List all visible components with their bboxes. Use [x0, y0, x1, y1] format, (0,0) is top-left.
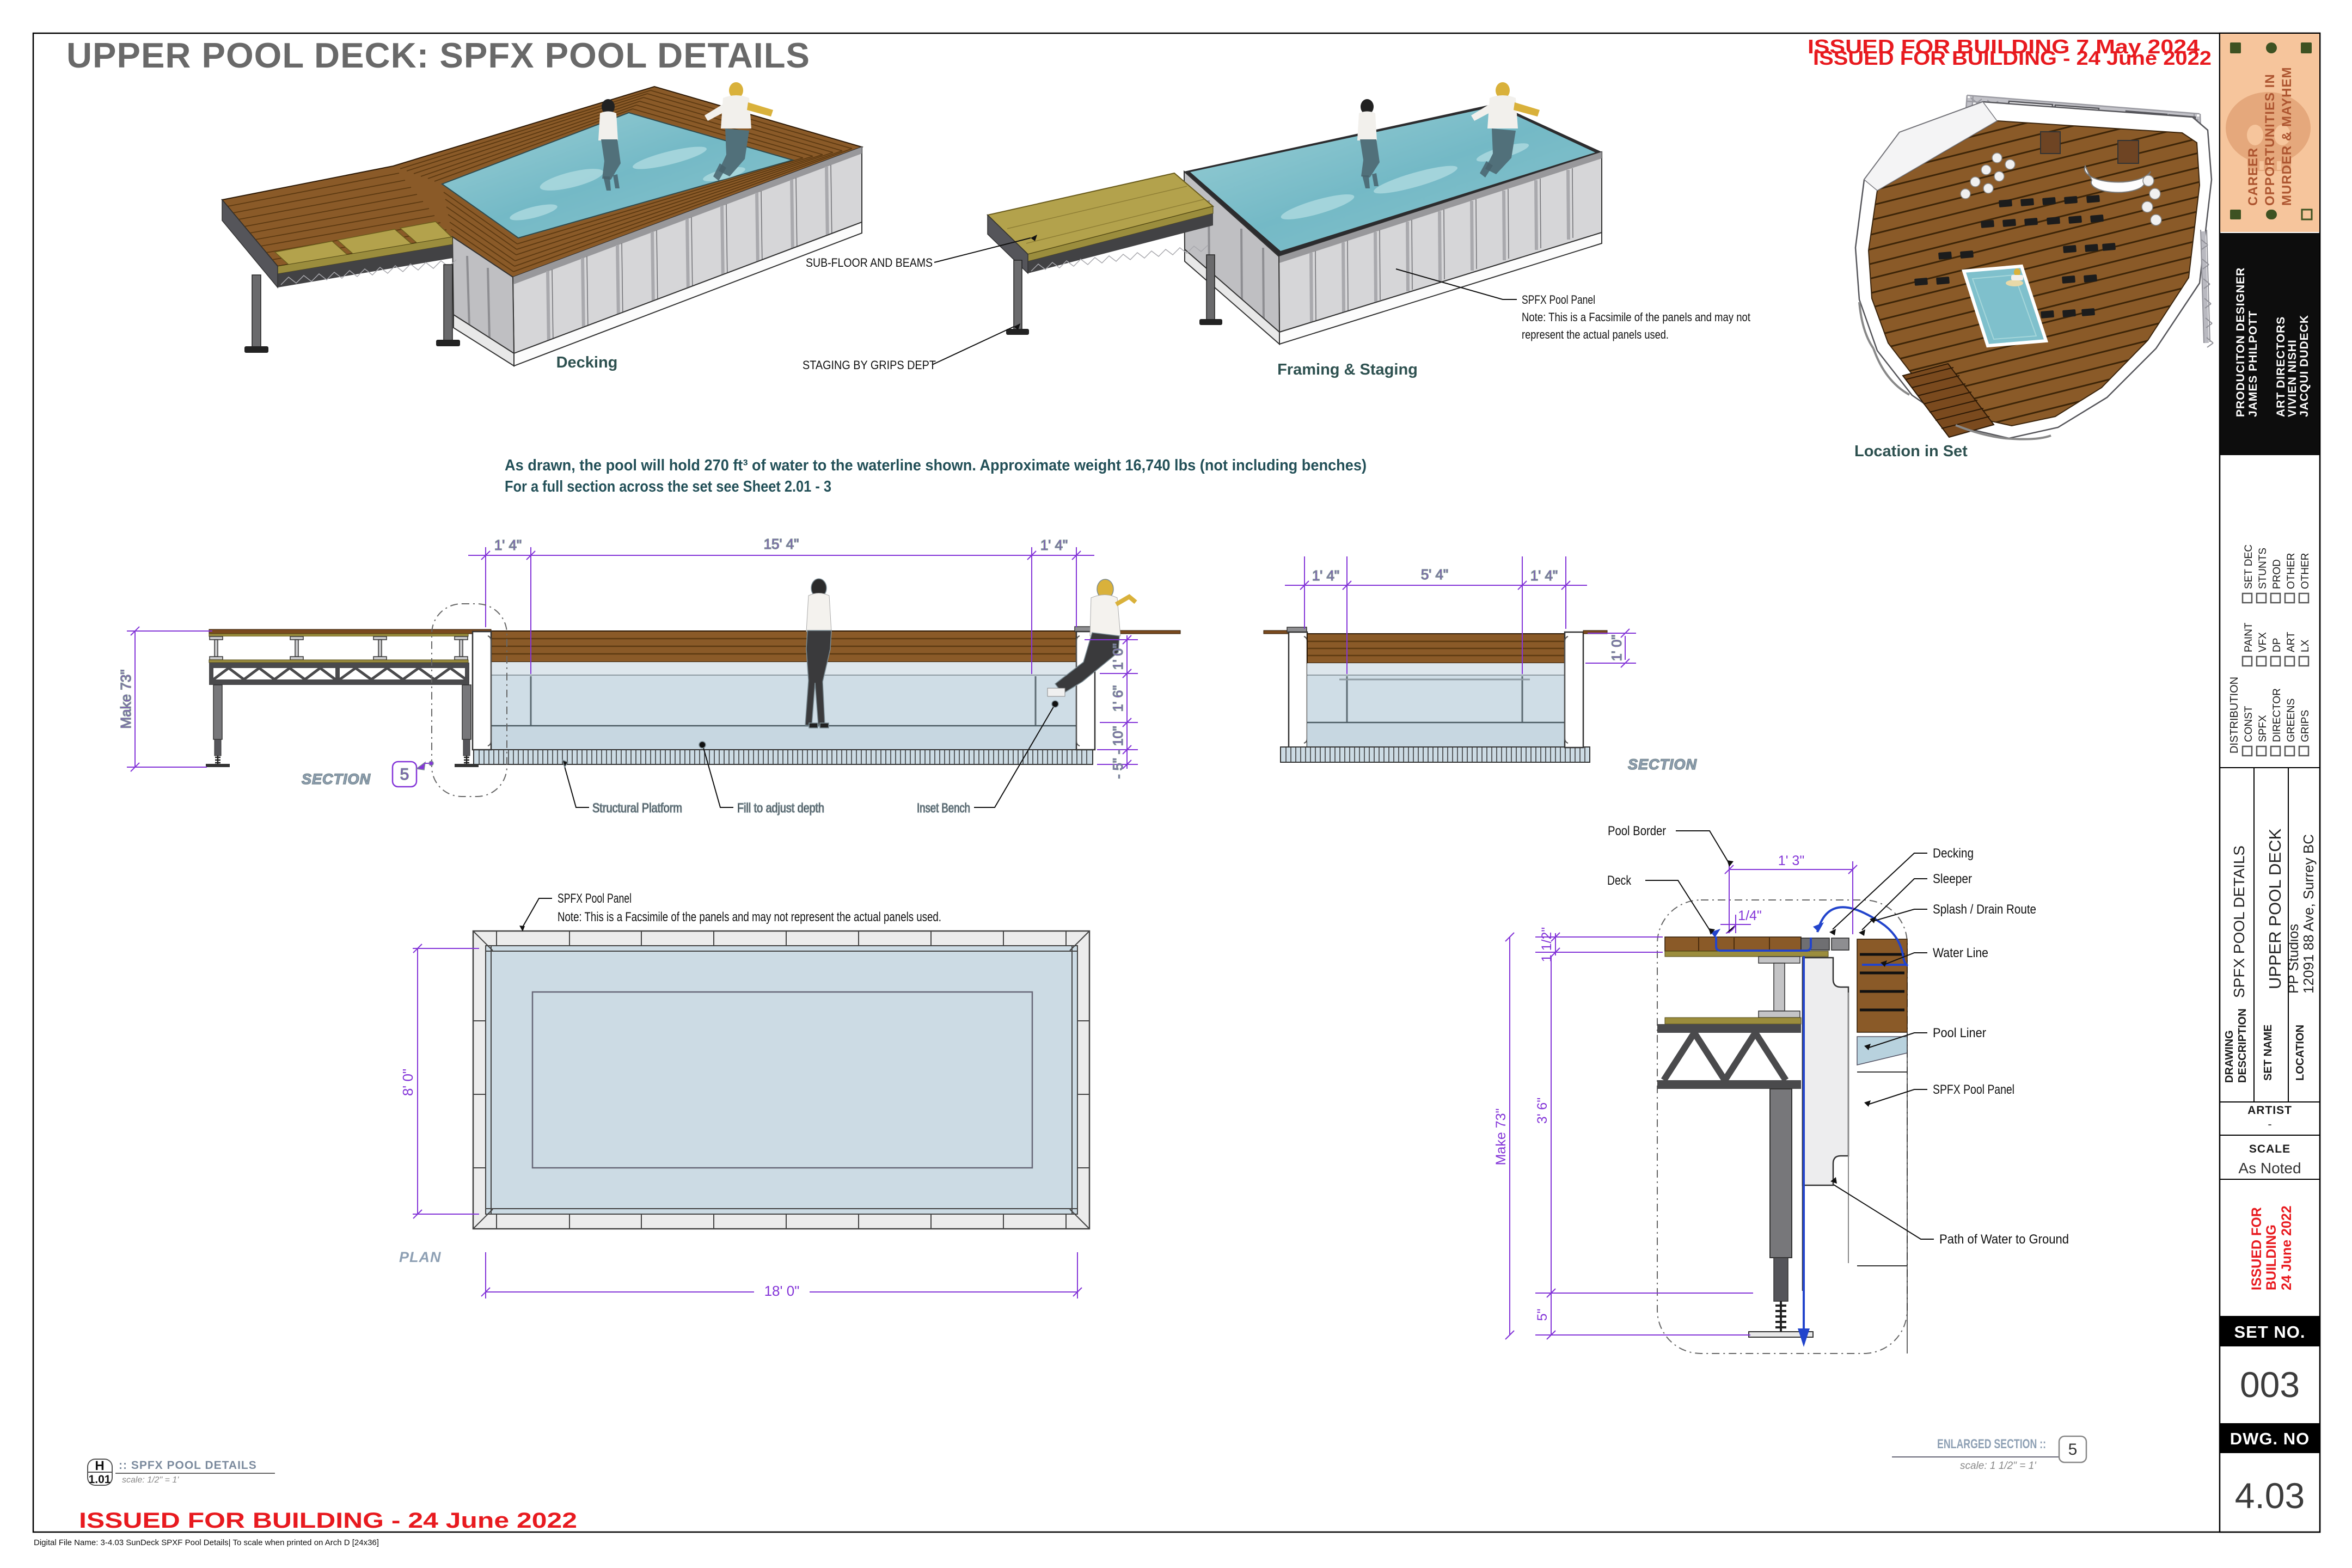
svg-text:VFX: VFX: [2257, 632, 2269, 652]
svg-text:5: 5: [2068, 1441, 2078, 1459]
svg-text:Deck: Deck: [1607, 873, 1632, 888]
svg-text:ISSUED FOR BUILDING - 24 June: ISSUED FOR BUILDING - 24 June 2022: [79, 1509, 577, 1533]
svg-text:CAREER: CAREER: [2246, 148, 2261, 206]
svg-text:SECTION: SECTION: [1628, 756, 1697, 773]
svg-text:As drawn, the pool will hold 2: As drawn, the pool will hold 270 ft³ of …: [505, 457, 1367, 474]
svg-text:PROD: PROD: [2271, 559, 2283, 589]
svg-text:Decking: Decking: [556, 354, 618, 371]
svg-text:-: -: [2268, 1117, 2271, 1131]
svg-text:SCALE: SCALE: [2249, 1143, 2290, 1155]
svg-text:scale: 1 1/2" = 1': scale: 1 1/2" = 1': [1960, 1460, 2037, 1472]
svg-text:ART: ART: [2286, 632, 2297, 652]
svg-text:1' 0": 1' 0": [1111, 644, 1126, 670]
svg-text:OTHER: OTHER: [2286, 553, 2297, 590]
svg-text:CONST: CONST: [2243, 706, 2255, 742]
svg-text:Location in Set: Location in Set: [1854, 443, 1968, 460]
svg-text:UPPER POOL DECK: UPPER POOL DECK: [2265, 829, 2284, 989]
svg-text:BUILDING: BUILDING: [2264, 1224, 2279, 1290]
svg-text:ISSUED FOR BUILDING - 24 June: ISSUED FOR BUILDING - 24 June 2022: [1813, 47, 2212, 69]
svg-text:SPFX Pool Panel: SPFX Pool Panel: [1933, 1082, 2014, 1097]
svg-text:DIRECTOR: DIRECTOR: [2271, 688, 2283, 742]
svg-text:ENLARGED SECTION ::: ENLARGED SECTION ::: [1937, 1437, 2046, 1451]
svg-text:SET DEC: SET DEC: [2243, 544, 2255, 589]
svg-text:003: 003: [2240, 1364, 2300, 1405]
svg-text:JAMES PHILPOTT: JAMES PHILPOTT: [2247, 310, 2259, 417]
svg-text:LOCATION: LOCATION: [2294, 1025, 2306, 1081]
svg-text:scale: 1/2" = 1': scale: 1/2" = 1': [122, 1475, 179, 1485]
svg-text:OTHER: OTHER: [2300, 553, 2311, 590]
svg-text:Note: This is a Facsimile of t: Note: This is a Facsimile of the panels …: [558, 910, 941, 924]
svg-text:SECTION: SECTION: [302, 771, 371, 787]
svg-text:PLAN: PLAN: [399, 1249, 442, 1265]
svg-text:1' 6": 1' 6": [1111, 685, 1126, 712]
svg-text:LX: LX: [2300, 639, 2311, 652]
svg-text:1/4": 1/4": [1738, 908, 1762, 923]
svg-text:Fill to adjust depth: Fill to adjust depth: [737, 801, 824, 816]
svg-text:DISTRIBUTION: DISTRIBUTION: [2228, 677, 2240, 754]
svg-text:STUNTS: STUNTS: [2257, 548, 2269, 589]
svg-text:Inset Bench: Inset Bench: [917, 801, 970, 816]
svg-text:3' 6": 3' 6": [1535, 1098, 1550, 1124]
svg-text:SPFX: SPFX: [2257, 715, 2269, 742]
svg-text:8' 0": 8' 0": [400, 1069, 416, 1096]
svg-text:Water Line: Water Line: [1933, 946, 1988, 960]
svg-text:SET NAME: SET NAME: [2262, 1025, 2274, 1081]
svg-text:SPFX Pool Panel: SPFX Pool Panel: [558, 891, 632, 906]
svg-text:4.03: 4.03: [2235, 1475, 2305, 1516]
svg-text:MURDER & MAYHEM: MURDER & MAYHEM: [2280, 67, 2294, 206]
svg-text:- 5" - 10": - 5" - 10": [1111, 726, 1126, 779]
svg-text::: SPFX POOL DETAILS: :: SPFX POOL DETAILS: [119, 1459, 257, 1472]
svg-text:SUB-FLOOR AND BEAMS: SUB-FLOOR AND BEAMS: [806, 256, 933, 269]
svg-text:PRODUCITON DESIGNER: PRODUCITON DESIGNER: [2234, 267, 2247, 417]
svg-text:PAINT: PAINT: [2243, 622, 2255, 652]
svg-text:1' 0": 1' 0": [1609, 635, 1625, 661]
svg-text:OPPORTUNITIES IN: OPPORTUNITIES IN: [2263, 73, 2277, 206]
svg-text:5' 4": 5' 4": [1421, 566, 1448, 583]
svg-text:DWG. NO: DWG. NO: [2230, 1429, 2310, 1448]
svg-text:DRAWING: DRAWING: [2224, 1030, 2235, 1083]
svg-text:1 1/2": 1 1/2": [1539, 927, 1554, 962]
svg-text:12091 88 Ave, Surrey BC: 12091 88 Ave, Surrey BC: [2300, 834, 2317, 994]
svg-text:Digital File Name: 3-4.03 SunD: Digital File Name: 3-4.03 SunDeck SPXF P…: [34, 1538, 379, 1547]
svg-text:Framing & Staging: Framing & Staging: [1277, 361, 1418, 378]
svg-text:15' 4": 15' 4": [764, 536, 799, 552]
svg-text:1.01: 1.01: [89, 1473, 111, 1486]
svg-text:1' 4": 1' 4": [1040, 537, 1068, 553]
svg-text:GREENS: GREENS: [2286, 699, 2297, 742]
svg-text:Splash / Drain Route: Splash / Drain Route: [1933, 902, 2036, 917]
svg-text:Sleeper: Sleeper: [1933, 872, 1972, 886]
svg-text:ARTIST: ARTIST: [2247, 1104, 2292, 1117]
svg-text:H: H: [95, 1459, 104, 1473]
svg-text:Pool Border: Pool Border: [1608, 824, 1666, 838]
svg-text:ART DIRECTORS: ART DIRECTORS: [2275, 316, 2287, 417]
svg-text:Decking: Decking: [1933, 846, 1974, 861]
svg-text:As Noted: As Noted: [2238, 1160, 2301, 1177]
svg-text:Note: This is a Facsimile of t: Note: This is a Facsimile of the panels …: [1522, 310, 1750, 324]
svg-text:STAGING BY GRIPS DEPT: STAGING BY GRIPS DEPT: [803, 358, 936, 372]
svg-text:Make 73": Make 73": [118, 670, 134, 729]
svg-text:SPFX POOL DETAILS: SPFX POOL DETAILS: [2231, 846, 2247, 998]
svg-text:1' 3": 1' 3": [1778, 853, 1804, 868]
svg-text:18' 0": 18' 0": [764, 1283, 800, 1299]
svg-text:represent the actual panels us: represent the actual panels used.: [1522, 328, 1669, 341]
svg-text:ISSUED FOR: ISSUED FOR: [2249, 1207, 2264, 1290]
svg-text:DP: DP: [2271, 638, 2283, 652]
svg-text:SET NO.: SET NO.: [2234, 1322, 2305, 1342]
svg-text:PP Studios: PP Studios: [2285, 924, 2301, 994]
svg-text:For a full section across the: For a full section across the set see Sh…: [505, 478, 831, 495]
svg-text:24 June 2022: 24 June 2022: [2279, 1205, 2294, 1290]
svg-text:1' 4": 1' 4": [1312, 567, 1339, 584]
svg-text:1' 4": 1' 4": [494, 537, 522, 553]
svg-text:Make 73": Make 73": [1493, 1108, 1509, 1166]
svg-text:Path of Water to Ground: Path of Water to Ground: [1939, 1232, 2069, 1247]
svg-text:SPFX Pool Panel: SPFX Pool Panel: [1522, 293, 1595, 307]
svg-text:GRIPS: GRIPS: [2300, 710, 2311, 742]
svg-text:Pool Liner: Pool Liner: [1933, 1026, 1986, 1040]
svg-text:VIVIEN NISHI: VIVIEN NISHI: [2286, 339, 2299, 417]
svg-text:Structural Platform: Structural Platform: [592, 801, 682, 816]
svg-text:5: 5: [400, 765, 409, 783]
svg-text:JACQUI DUDECK: JACQUI DUDECK: [2298, 315, 2311, 417]
svg-text:UPPER POOL DECK: SPFX POOL DET: UPPER POOL DECK: SPFX POOL DETAILS: [66, 35, 810, 75]
svg-text:DESCRIPTION: DESCRIPTION: [2237, 1008, 2249, 1083]
svg-text:5": 5": [1535, 1309, 1550, 1321]
svg-text:1' 4": 1' 4": [1530, 567, 1558, 584]
